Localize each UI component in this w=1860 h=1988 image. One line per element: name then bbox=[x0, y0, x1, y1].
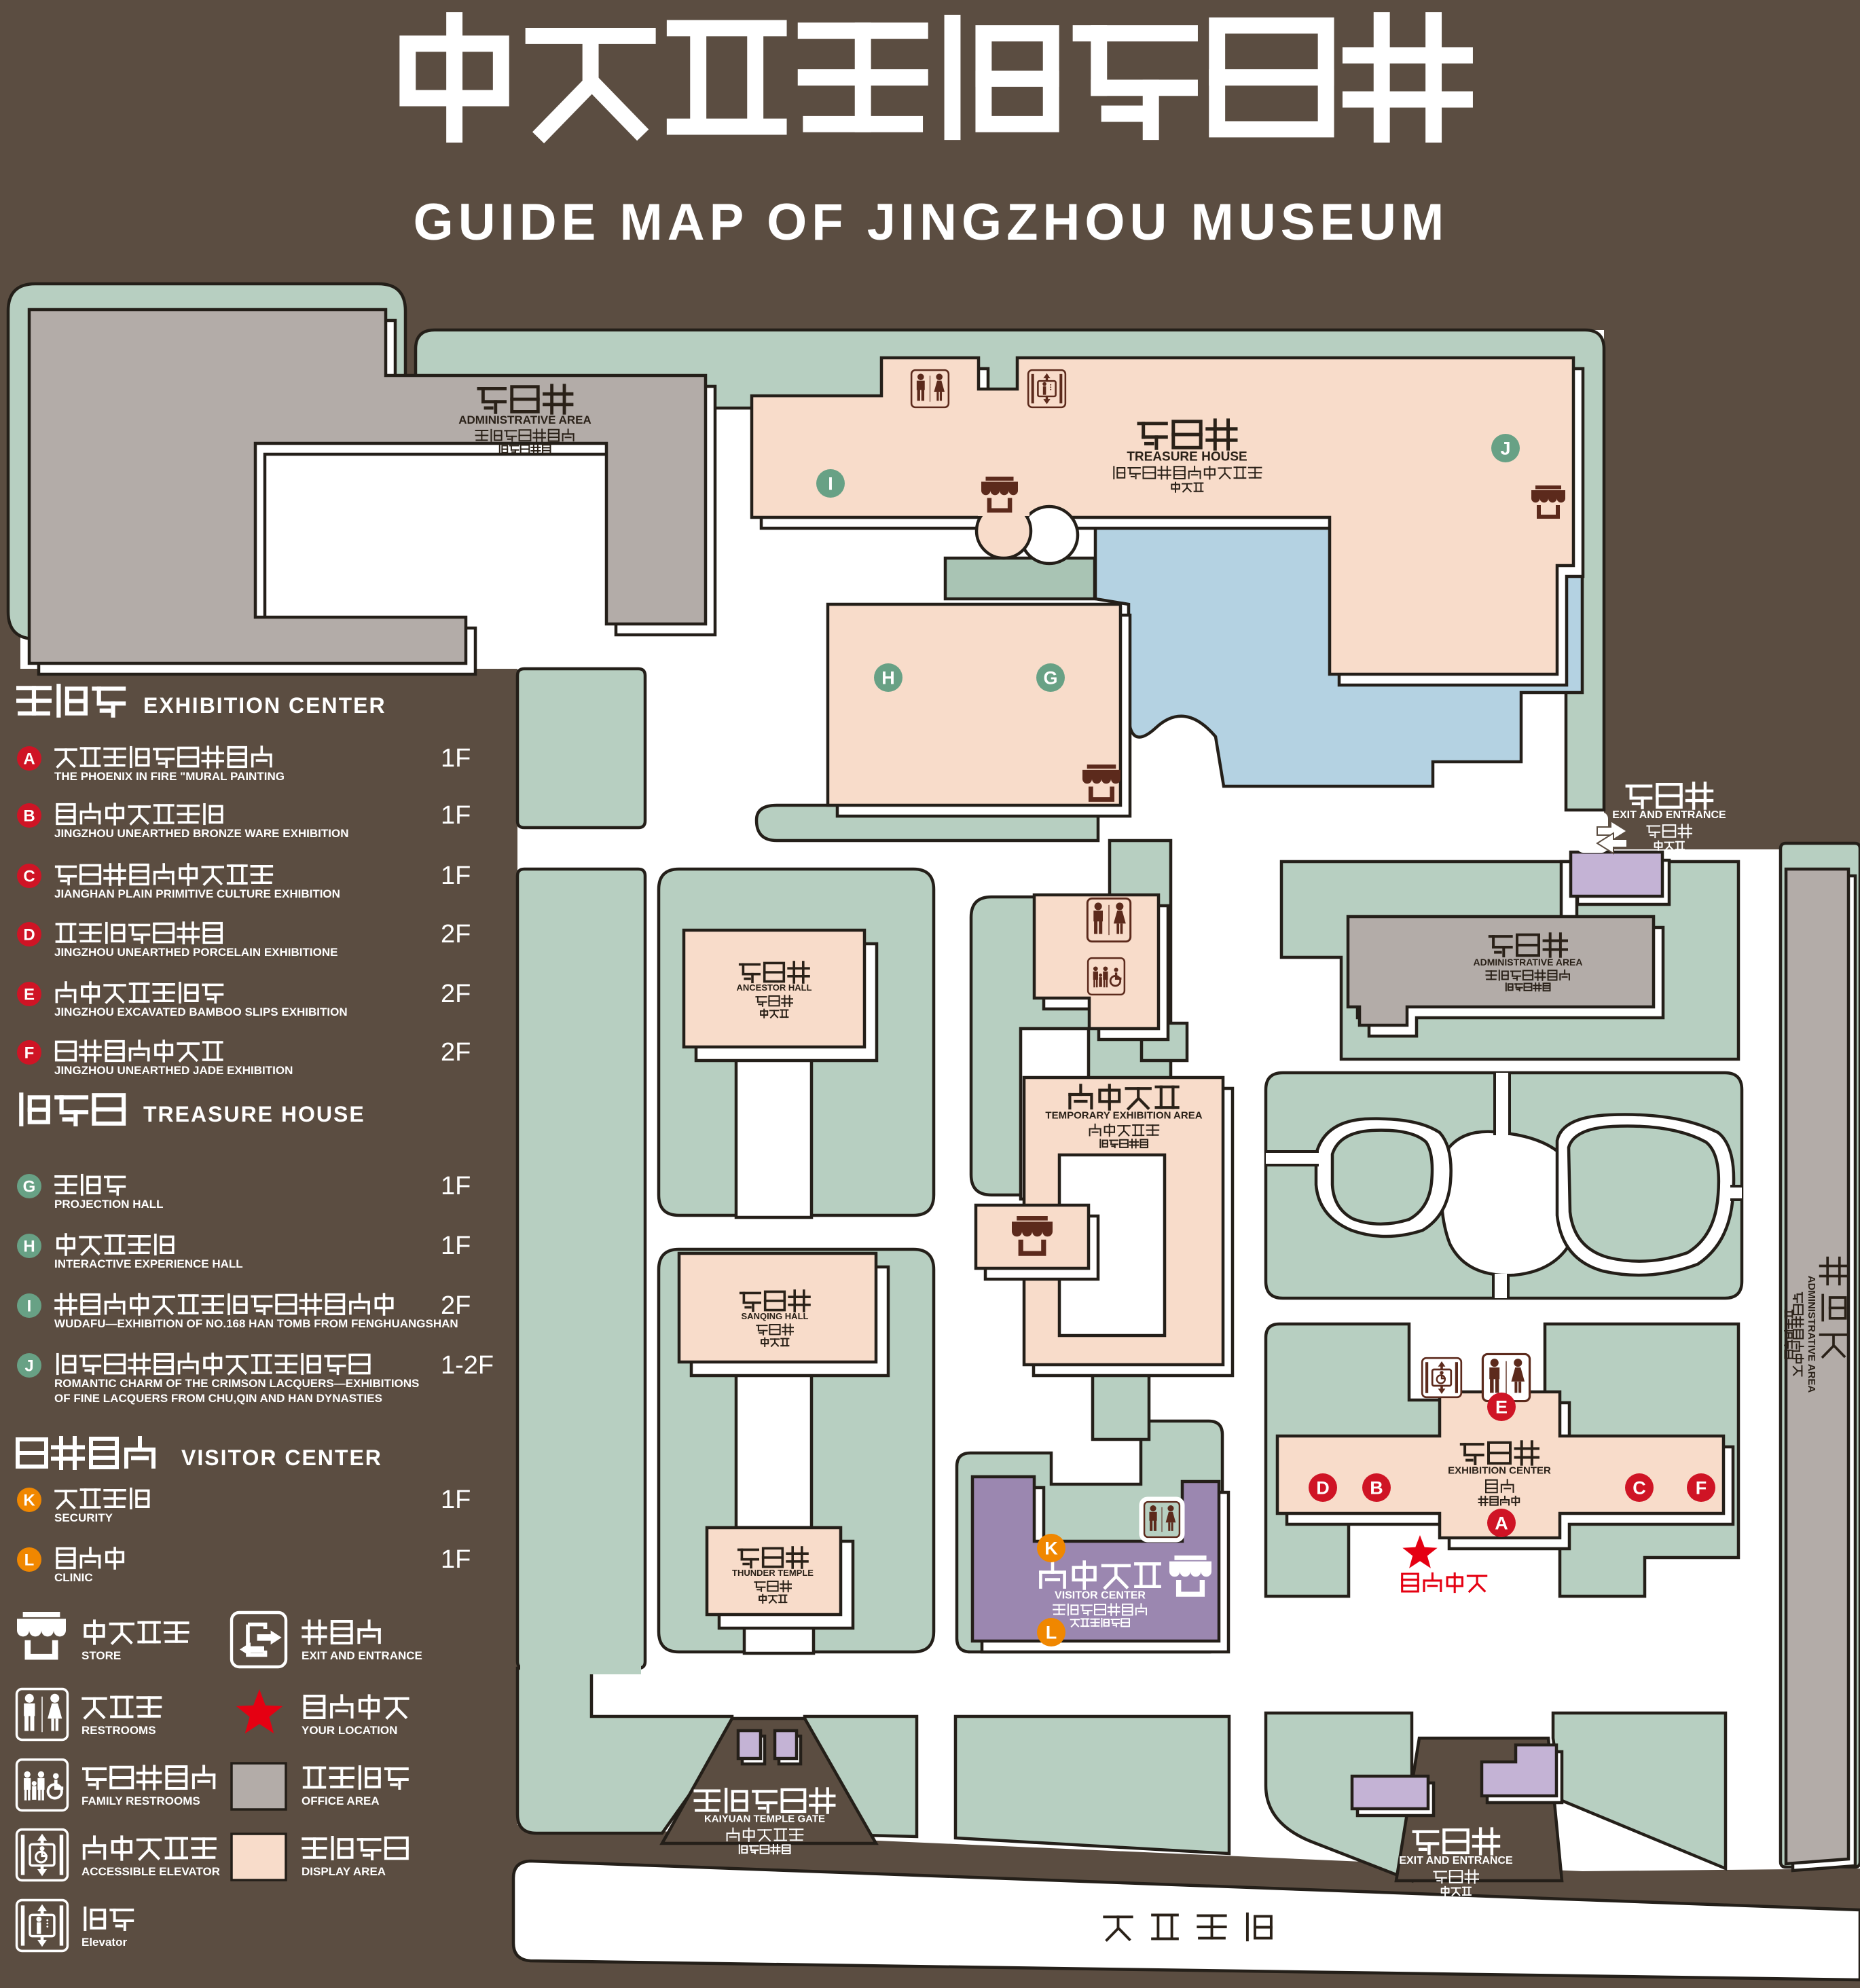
svg-text:EXIT AND ENTRANCE: EXIT AND ENTRANCE bbox=[1399, 1855, 1513, 1866]
svg-text:E: E bbox=[1495, 1397, 1508, 1417]
svg-text:1F: 1F bbox=[441, 1172, 471, 1200]
svg-text:INTERACTIVE EXPERIENCE HALL: INTERACTIVE EXPERIENCE HALL bbox=[54, 1257, 243, 1270]
svg-text:2F: 2F bbox=[441, 920, 471, 949]
svg-text:I: I bbox=[27, 1297, 32, 1315]
svg-text:KAIYUAN TEMPLE GATE: KAIYUAN TEMPLE GATE bbox=[704, 1814, 825, 1825]
svg-text:L: L bbox=[1046, 1622, 1057, 1642]
svg-text:A: A bbox=[23, 750, 35, 768]
svg-text:THUNDER TEMPLE: THUNDER TEMPLE bbox=[732, 1568, 814, 1578]
svg-text:GUIDE MAP OF JINGZHOU MUSEUM: GUIDE MAP OF JINGZHOU MUSEUM bbox=[414, 194, 1449, 251]
svg-text:JINGZHOU UNEARTHED BRONZE WARE: JINGZHOU UNEARTHED BRONZE WARE EXHIBITIO… bbox=[54, 827, 349, 840]
svg-text:B: B bbox=[1370, 1477, 1383, 1498]
svg-text:H: H bbox=[23, 1237, 35, 1255]
svg-text:EXHIBITION CENTER: EXHIBITION CENTER bbox=[1448, 1465, 1551, 1476]
svg-text:1-2F: 1-2F bbox=[441, 1351, 494, 1380]
svg-text:1F: 1F bbox=[441, 744, 471, 773]
svg-text:D: D bbox=[1316, 1477, 1330, 1498]
svg-text:1F: 1F bbox=[441, 862, 471, 890]
svg-text:1F: 1F bbox=[441, 1486, 471, 1514]
svg-text:TREASURE HOUSE: TREASURE HOUSE bbox=[1127, 449, 1247, 464]
svg-text:ADMINISTRATIVE AREA: ADMINISTRATIVE AREA bbox=[1474, 957, 1583, 968]
svg-text:SANQING HALL: SANQING HALL bbox=[742, 1311, 809, 1321]
svg-text:JINGZHOU EXCAVATED BAMBOO SLIP: JINGZHOU EXCAVATED BAMBOO SLIPS EXHIBITI… bbox=[54, 1006, 348, 1018]
svg-text:F: F bbox=[24, 1044, 35, 1062]
svg-text:JIANGHAN PLAIN PRIMITIVE CULTU: JIANGHAN PLAIN PRIMITIVE CULTURE EXHIBIT… bbox=[54, 887, 340, 900]
svg-text:ADMINISTRATIVE AREA: ADMINISTRATIVE AREA bbox=[458, 413, 591, 426]
svg-text:YOUR LOCATION: YOUR LOCATION bbox=[302, 1724, 397, 1737]
svg-text:ANCESTOR HALL: ANCESTOR HALL bbox=[737, 982, 812, 993]
svg-text:OFFICE AREA: OFFICE AREA bbox=[302, 1794, 380, 1807]
svg-text:Elevator: Elevator bbox=[81, 1936, 127, 1949]
svg-text:VISITOR CENTER: VISITOR CENTER bbox=[1055, 1589, 1146, 1601]
svg-text:CLINIC: CLINIC bbox=[54, 1571, 93, 1584]
svg-text:J: J bbox=[24, 1357, 33, 1375]
svg-text:F: F bbox=[1696, 1477, 1707, 1498]
svg-text:EXIT AND ENTRANCE: EXIT AND ENTRANCE bbox=[302, 1649, 422, 1662]
svg-text:EXIT AND ENTRANCE: EXIT AND ENTRANCE bbox=[1612, 809, 1726, 821]
svg-text:H: H bbox=[881, 667, 895, 688]
svg-text:D: D bbox=[23, 925, 35, 944]
svg-text:I: I bbox=[828, 473, 833, 494]
svg-text:STORE: STORE bbox=[81, 1649, 121, 1662]
svg-text:J: J bbox=[1500, 438, 1510, 458]
svg-text:2F: 2F bbox=[441, 1291, 471, 1320]
svg-text:PROJECTION HALL: PROJECTION HALL bbox=[54, 1198, 164, 1211]
svg-text:C: C bbox=[23, 867, 35, 885]
svg-text:FAMILY RESTROOMS: FAMILY RESTROOMS bbox=[81, 1794, 200, 1807]
svg-text:SECURITY: SECURITY bbox=[54, 1511, 113, 1524]
svg-text:VISITOR CENTER: VISITOR CENTER bbox=[181, 1446, 382, 1470]
svg-text:1F: 1F bbox=[441, 1545, 471, 1574]
svg-text:TEMPORARY EXHIBITION AREA: TEMPORARY EXHIBITION AREA bbox=[1045, 1110, 1202, 1122]
svg-text:G: G bbox=[1043, 667, 1057, 688]
svg-text:JINGZHOU UNEARTHED JADE EXHIBI: JINGZHOU UNEARTHED JADE EXHIBITION bbox=[54, 1064, 293, 1077]
svg-text:1F: 1F bbox=[441, 1232, 471, 1260]
svg-text:2F: 2F bbox=[441, 1038, 471, 1067]
svg-text:C: C bbox=[1633, 1477, 1646, 1498]
svg-text:ACCESSIBLE ELEVATOR: ACCESSIBLE ELEVATOR bbox=[81, 1865, 220, 1878]
svg-text:K: K bbox=[23, 1491, 35, 1509]
svg-text:OF FINE LACQUERS FROM CHU,QIN: OF FINE LACQUERS FROM CHU,QIN AND HAN DY… bbox=[54, 1392, 382, 1405]
svg-text:TREASURE HOUSE: TREASURE HOUSE bbox=[143, 1102, 365, 1126]
svg-text:EXHIBITION CENTER: EXHIBITION CENTER bbox=[143, 693, 386, 718]
svg-text:B: B bbox=[23, 807, 35, 825]
svg-text:2F: 2F bbox=[441, 980, 471, 1008]
svg-text:WUDAFU—EXHIBITION OF NO.168 HA: WUDAFU—EXHIBITION OF NO.168 HAN TOMB FRO… bbox=[54, 1317, 458, 1330]
svg-text:A: A bbox=[1495, 1513, 1508, 1533]
svg-text:K: K bbox=[1044, 1538, 1058, 1558]
svg-text:DISPLAY AREA: DISPLAY AREA bbox=[302, 1865, 386, 1878]
svg-text:L: L bbox=[24, 1551, 35, 1569]
svg-text:THE PHOENIX IN FIRE "MURAL PAI: THE PHOENIX IN FIRE "MURAL PAINTING bbox=[54, 770, 285, 783]
svg-text:1F: 1F bbox=[441, 801, 471, 830]
svg-text:G: G bbox=[23, 1177, 36, 1196]
svg-text:JINGZHOU UNEARTHED PORCELAIN E: JINGZHOU UNEARTHED PORCELAIN EXHIBITIONE bbox=[54, 946, 338, 959]
svg-text:ROMANTIC CHARM OF THE CRIMSON: ROMANTIC CHARM OF THE CRIMSON LACQUERS—E… bbox=[54, 1377, 419, 1390]
svg-text:ADMINISTRATIVE AREA: ADMINISTRATIVE AREA bbox=[1806, 1276, 1817, 1393]
svg-text:RESTROOMS: RESTROOMS bbox=[81, 1724, 156, 1737]
svg-text:E: E bbox=[24, 985, 35, 1004]
